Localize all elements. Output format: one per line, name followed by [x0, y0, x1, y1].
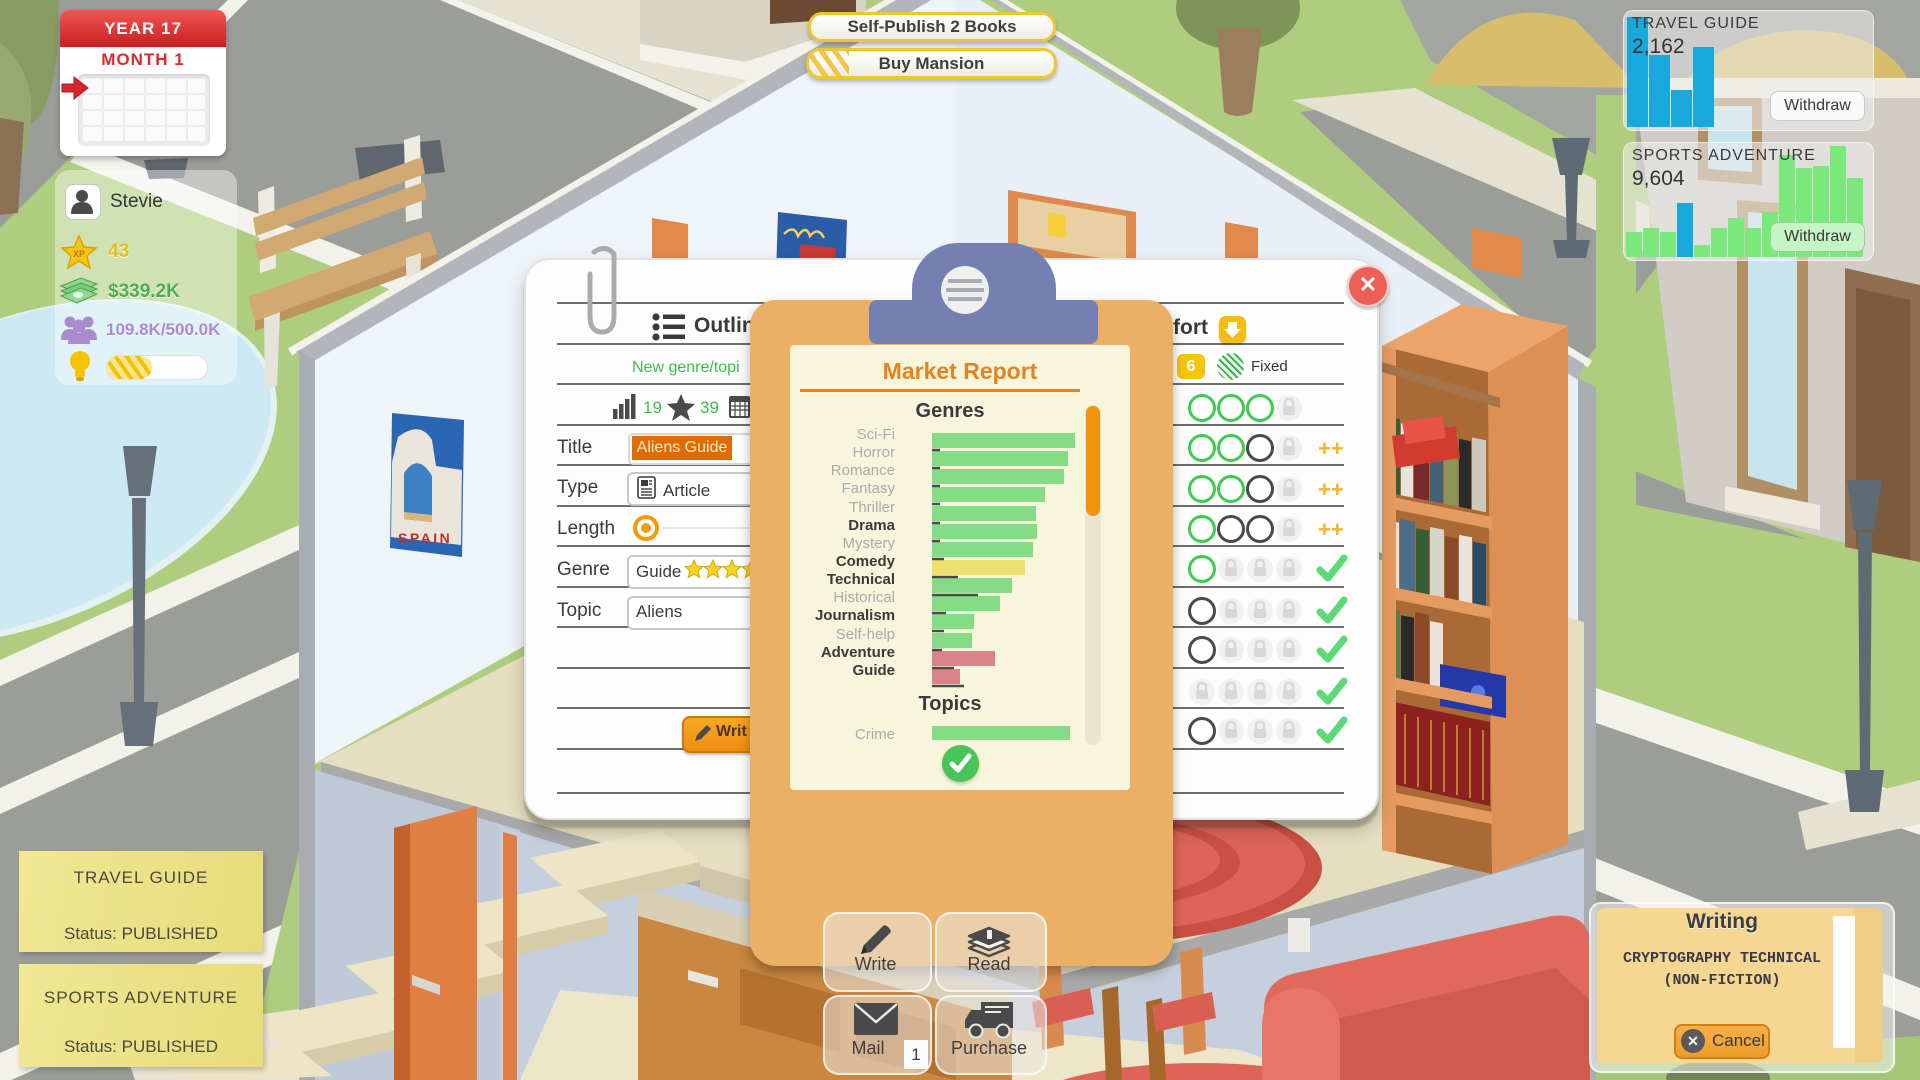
svg-text:Journalism: Journalism: [815, 607, 895, 624]
svg-text:Thriller: Thriller: [849, 499, 895, 516]
svg-text:Technical: Technical: [827, 571, 895, 588]
svg-text:Guide: Guide: [852, 662, 895, 679]
svg-text:Sci-Fi: Sci-Fi: [857, 426, 895, 443]
svg-text:Adventure: Adventure: [821, 644, 895, 661]
svg-text:SPAIN: SPAIN: [398, 530, 452, 546]
svg-text:Comedy: Comedy: [836, 553, 896, 570]
svg-text:++: ++: [1318, 517, 1344, 542]
svg-text:Self-help: Self-help: [836, 626, 895, 643]
svg-text:XP: XP: [73, 249, 85, 259]
svg-text:++: ++: [1318, 436, 1344, 461]
svg-text:Drama: Drama: [848, 517, 895, 534]
svg-text:Romance: Romance: [831, 462, 895, 479]
svg-text:Fantasy: Fantasy: [842, 480, 896, 497]
svg-text:++: ++: [1318, 477, 1344, 502]
svg-text:Mystery: Mystery: [843, 535, 896, 552]
svg-text:Historical: Historical: [833, 589, 895, 606]
svg-text:Horror: Horror: [852, 444, 895, 461]
